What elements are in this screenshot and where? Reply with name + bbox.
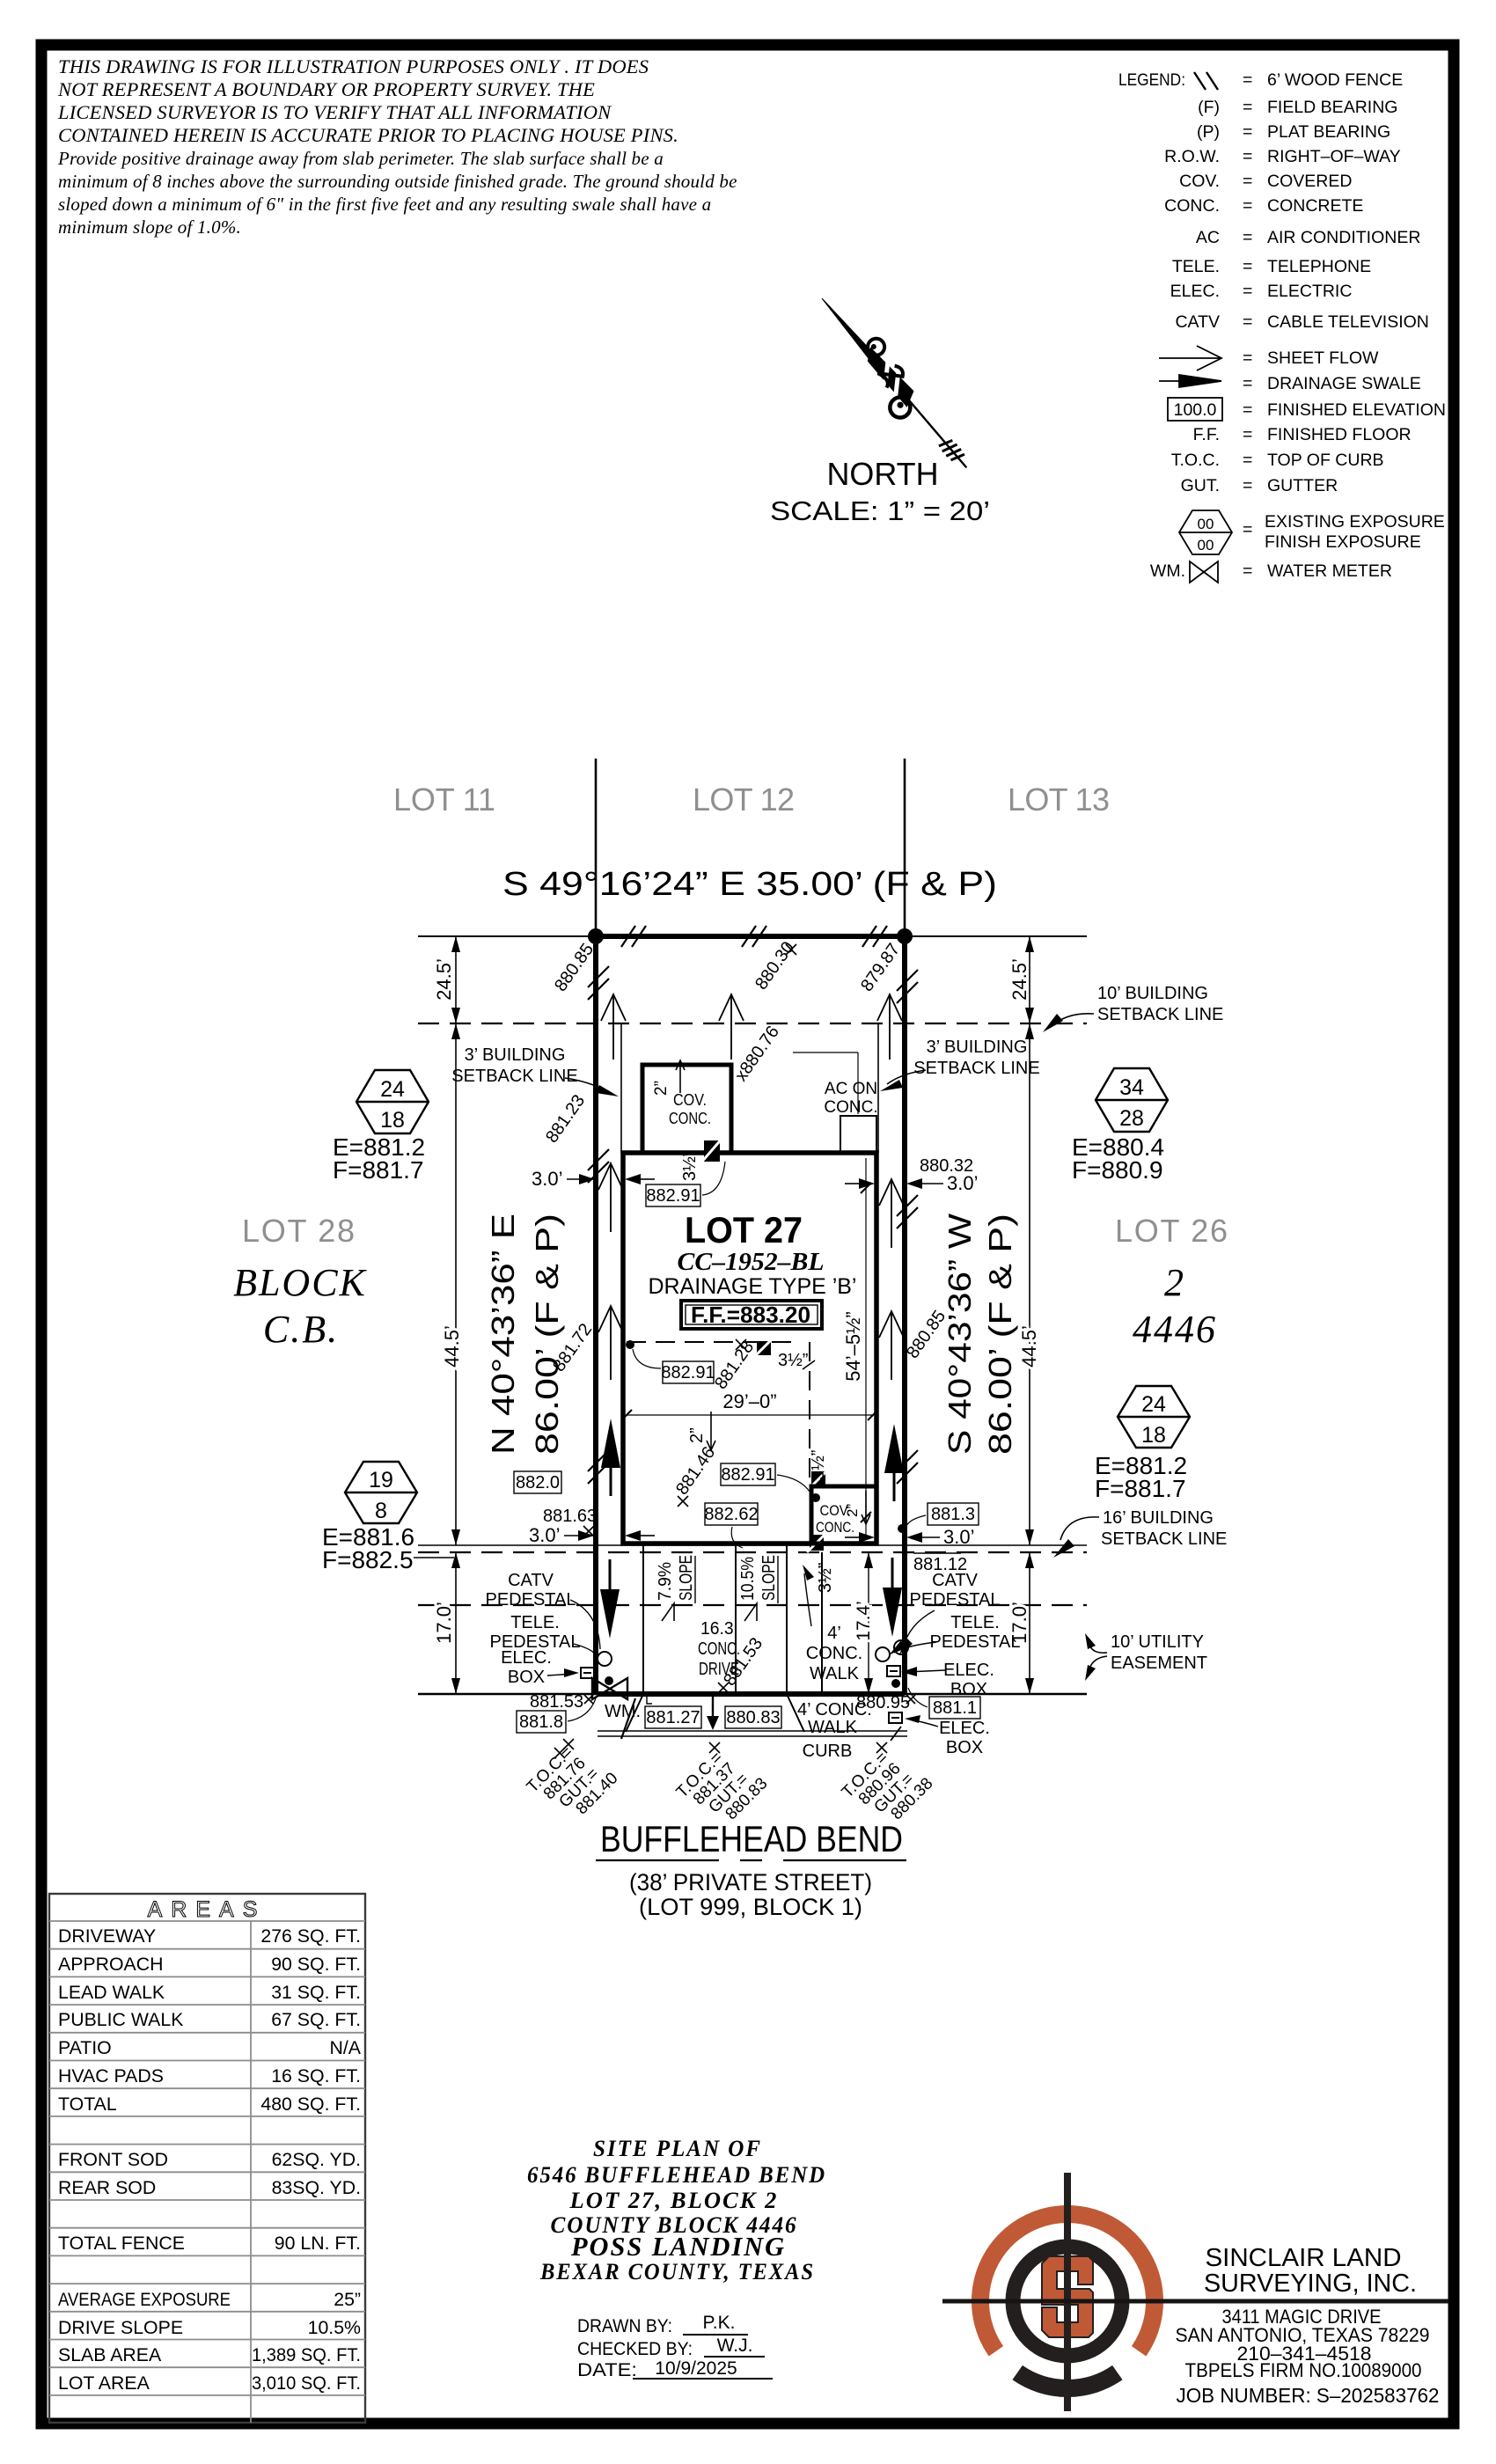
svg-text:CURB: CURB bbox=[803, 1742, 853, 1761]
svg-text:90 LN. FT.: 90 LN. FT. bbox=[275, 2233, 361, 2254]
svg-text:BUFFLEHEAD BEND: BUFFLEHEAD BEND bbox=[600, 1818, 903, 1859]
svg-text:29’–0”: 29’–0” bbox=[722, 1390, 776, 1412]
svg-text:18: 18 bbox=[1141, 1423, 1166, 1448]
svg-text:3½”: 3½” bbox=[680, 1151, 700, 1181]
svg-text:24.5’: 24.5’ bbox=[433, 958, 455, 1001]
svg-text:CHECKED BY:: CHECKED BY: bbox=[577, 2339, 693, 2359]
svg-text:N 40°43’36” E: N 40°43’36” E bbox=[485, 1214, 521, 1455]
svg-text:54’–5½”: 54’–5½” bbox=[842, 1311, 864, 1382]
svg-text:16’ BUILDING: 16’ BUILDING bbox=[1103, 1508, 1214, 1528]
svg-text:GUTTER: GUTTER bbox=[1267, 476, 1338, 495]
svg-text:882.0: 882.0 bbox=[516, 1473, 560, 1492]
svg-text:AC: AC bbox=[1196, 228, 1220, 247]
svg-text:880.83: 880.83 bbox=[726, 1708, 780, 1727]
svg-text:16 SQ. FT.: 16 SQ. FT. bbox=[271, 2065, 361, 2086]
svg-text:TOTAL: TOTAL bbox=[58, 2094, 117, 2115]
svg-text:FRONT SOD: FRONT SOD bbox=[58, 2149, 168, 2170]
svg-text:FINISHED ELEVATION: FINISHED ELEVATION bbox=[1267, 400, 1446, 420]
svg-text:AVERAGE EXPOSURE: AVERAGE EXPOSURE bbox=[58, 2289, 231, 2310]
svg-text:BOX: BOX bbox=[508, 1668, 545, 1687]
svg-text:=: = bbox=[1243, 312, 1252, 332]
svg-text:CONC.: CONC. bbox=[698, 1639, 740, 1659]
svg-text:WM.: WM. bbox=[1150, 561, 1185, 581]
svg-text:LOT 27: LOT 27 bbox=[685, 1209, 803, 1250]
svg-text:CATV: CATV bbox=[1175, 312, 1220, 332]
svg-text:EASEMENT: EASEMENT bbox=[1111, 1654, 1207, 1673]
svg-text:881.1: 881.1 bbox=[933, 1698, 977, 1718]
svg-text:86.00’ (F & P): 86.00’ (F & P) bbox=[529, 1214, 565, 1455]
svg-text:TBPELS FIRM NO.10089000: TBPELS FIRM NO.10089000 bbox=[1185, 2359, 1422, 2381]
svg-text:PEDESTAL: PEDESTAL bbox=[910, 1590, 1001, 1610]
svg-text:17.0’: 17.0’ bbox=[433, 1602, 455, 1644]
svg-text:Provide positive drainage away: Provide positive drainage away from slab… bbox=[57, 148, 664, 169]
svg-text:CONC.: CONC. bbox=[669, 1110, 711, 1127]
svg-text:TELE.: TELE. bbox=[510, 1613, 560, 1632]
svg-text:3.0’: 3.0’ bbox=[943, 1526, 974, 1548]
svg-text:10/9/2025: 10/9/2025 bbox=[655, 2358, 737, 2379]
svg-text:F=880.9: F=880.9 bbox=[1072, 1156, 1163, 1184]
svg-text:24: 24 bbox=[1141, 1392, 1166, 1417]
svg-text:1,389 SQ. FT.: 1,389 SQ. FT. bbox=[252, 2344, 361, 2365]
svg-text:CONC.: CONC. bbox=[1164, 196, 1220, 216]
svg-text:10.5%: 10.5% bbox=[738, 1557, 758, 1601]
svg-text:62SQ. YD.: 62SQ. YD. bbox=[272, 2149, 361, 2170]
svg-text:S 40°43’36” W: S 40°43’36” W bbox=[942, 1214, 978, 1455]
svg-text:SLOPE: SLOPE bbox=[677, 1555, 696, 1601]
svg-text:CATV: CATV bbox=[508, 1571, 554, 1590]
svg-text:PEDESTAL: PEDESTAL bbox=[486, 1590, 576, 1610]
svg-text:3’ BUILDING: 3’ BUILDING bbox=[465, 1045, 566, 1065]
svg-text:sloped down a minimum of 6" in: sloped down a minimum of 6" in the first… bbox=[58, 194, 711, 215]
svg-text:=: = bbox=[1243, 172, 1252, 191]
svg-text:882.91: 882.91 bbox=[646, 1186, 700, 1206]
svg-text:LICENSED SURVEYOR IS TO VERIFY: LICENSED SURVEYOR IS TO VERIFY THAT ALL … bbox=[57, 101, 612, 123]
svg-text:THIS DRAWING IS FOR ILLUSTRATI: THIS DRAWING IS FOR ILLUSTRATION PURPOSE… bbox=[58, 55, 649, 77]
svg-text:SURVEYING, INC.: SURVEYING, INC. bbox=[1204, 2270, 1417, 2298]
svg-text:882.91: 882.91 bbox=[721, 1465, 774, 1485]
svg-text:COV.: COV. bbox=[1179, 172, 1220, 191]
svg-text:SETBACK LINE: SETBACK LINE bbox=[913, 1059, 1039, 1078]
svg-text:=: = bbox=[1243, 476, 1252, 495]
svg-text:3½”: 3½” bbox=[778, 1351, 808, 1370]
svg-text:882.91: 882.91 bbox=[661, 1363, 715, 1382]
svg-text:RIGHT–OF–WAY: RIGHT–OF–WAY bbox=[1267, 147, 1401, 166]
svg-text:LEAD WALK: LEAD WALK bbox=[58, 1982, 165, 2003]
svg-text:00: 00 bbox=[1198, 516, 1214, 532]
svg-text:25”: 25” bbox=[334, 2289, 361, 2310]
svg-text:ELECTRIC: ELECTRIC bbox=[1267, 282, 1352, 301]
svg-text:3½”: 3½” bbox=[816, 1563, 835, 1593]
svg-text:83SQ. YD.: 83SQ. YD. bbox=[272, 2177, 361, 2198]
svg-text:2”: 2” bbox=[687, 1427, 707, 1443]
svg-text:POSS LANDING: POSS LANDING bbox=[570, 2231, 786, 2262]
svg-text:=: = bbox=[1243, 425, 1252, 444]
svg-text:10’ UTILITY: 10’ UTILITY bbox=[1111, 1632, 1204, 1652]
svg-text:00: 00 bbox=[1198, 537, 1214, 554]
svg-text:PEDESTAL: PEDESTAL bbox=[930, 1632, 1021, 1652]
svg-text:WALK: WALK bbox=[808, 1718, 858, 1737]
svg-text:DRAINAGE TYPE ’B’: DRAINAGE TYPE ’B’ bbox=[649, 1274, 857, 1299]
svg-text:T.O.C.: T.O.C. bbox=[1171, 451, 1220, 470]
svg-text:CONCRETE: CONCRETE bbox=[1267, 196, 1363, 216]
svg-text:=: = bbox=[1243, 451, 1252, 470]
svg-text:DATE:: DATE: bbox=[577, 2360, 637, 2380]
svg-text:TELE.: TELE. bbox=[1172, 257, 1220, 276]
svg-text:=: = bbox=[1243, 147, 1252, 166]
svg-text:COVERED: COVERED bbox=[1267, 172, 1352, 191]
svg-text:480 SQ. FT.: 480 SQ. FT. bbox=[260, 2094, 361, 2115]
svg-text:SINCLAIR LAND: SINCLAIR LAND bbox=[1206, 2244, 1402, 2272]
svg-text:CC–1952–BL: CC–1952–BL bbox=[678, 1248, 825, 1276]
svg-text:(F): (F) bbox=[1198, 98, 1220, 117]
svg-text:10’ BUILDING: 10’ BUILDING bbox=[1097, 984, 1208, 1003]
svg-text:ELEC.: ELEC. bbox=[501, 1648, 552, 1668]
svg-text:AREAS: AREAS bbox=[148, 1897, 267, 1922]
svg-text:JOB NUMBER: S–202583762: JOB NUMBER: S–202583762 bbox=[1177, 2384, 1440, 2407]
svg-text:S 49°16’24” E 35.00’ (F & P): S 49°16’24” E 35.00’ (F & P) bbox=[502, 866, 997, 903]
svg-text:CONC.: CONC. bbox=[806, 1644, 862, 1663]
svg-text:=: = bbox=[1243, 70, 1252, 90]
svg-text:DRAWN BY:: DRAWN BY: bbox=[577, 2316, 672, 2336]
svg-text:881.3: 881.3 bbox=[931, 1505, 975, 1524]
svg-text:881.53: 881.53 bbox=[530, 1692, 583, 1712]
svg-text:6546 BUFFLEHEAD BEND: 6546 BUFFLEHEAD BEND bbox=[527, 2162, 826, 2188]
svg-text:BEXAR COUNTY, TEXAS: BEXAR COUNTY, TEXAS bbox=[539, 2259, 815, 2284]
svg-text:LOT 28: LOT 28 bbox=[242, 1213, 356, 1249]
svg-text:100.0: 100.0 bbox=[1174, 400, 1217, 420]
svg-text:BLOCK: BLOCK bbox=[233, 1261, 367, 1304]
svg-text:SHEET FLOW: SHEET FLOW bbox=[1267, 348, 1379, 368]
svg-text:F=881.7: F=881.7 bbox=[333, 1156, 424, 1184]
svg-text:24: 24 bbox=[380, 1077, 405, 1102]
svg-text:881.63: 881.63 bbox=[543, 1507, 597, 1526]
svg-text:881.8: 881.8 bbox=[519, 1712, 563, 1732]
svg-text:GUT.: GUT. bbox=[1181, 476, 1220, 495]
svg-text:PATIO: PATIO bbox=[58, 2037, 112, 2058]
svg-text:=: = bbox=[1243, 348, 1252, 368]
svg-text:APPROACH: APPROACH bbox=[58, 1954, 164, 1975]
svg-text:FINISH EXPOSURE: FINISH EXPOSURE bbox=[1265, 532, 1421, 552]
svg-text:=: = bbox=[1243, 282, 1252, 301]
svg-text:WATER METER: WATER METER bbox=[1267, 561, 1392, 581]
svg-text:=: = bbox=[1243, 257, 1252, 276]
svg-text:276 SQ. FT.: 276 SQ. FT. bbox=[260, 1925, 361, 1947]
svg-text:16.3’: 16.3’ bbox=[700, 1619, 737, 1639]
svg-text:R.O.W.: R.O.W. bbox=[1164, 147, 1220, 166]
svg-text:CONTAINED HEREIN IS ACCURATE P: CONTAINED HEREIN IS ACCURATE PRIOR TO PL… bbox=[58, 124, 678, 146]
svg-text:CONC.: CONC. bbox=[824, 1098, 877, 1117]
svg-text:882.62: 882.62 bbox=[704, 1505, 758, 1524]
svg-text:18: 18 bbox=[380, 1108, 405, 1133]
svg-text:=: = bbox=[1243, 520, 1252, 539]
svg-text:86.00’ (F & P): 86.00’ (F & P) bbox=[982, 1214, 1018, 1455]
svg-text:minimum slope of 1.0%.: minimum slope of 1.0%. bbox=[58, 216, 241, 238]
svg-text:ELEC.: ELEC. bbox=[1170, 282, 1220, 301]
svg-text:SLAB AREA: SLAB AREA bbox=[58, 2344, 162, 2365]
svg-text:LOT 12: LOT 12 bbox=[693, 781, 796, 818]
svg-text:3.0’: 3.0’ bbox=[947, 1172, 978, 1194]
svg-text:DRAINAGE SWALE: DRAINAGE SWALE bbox=[1267, 374, 1421, 393]
svg-text:6’ WOOD FENCE: 6’ WOOD FENCE bbox=[1267, 70, 1403, 90]
svg-text:=: = bbox=[1243, 400, 1252, 420]
svg-text:=: = bbox=[1243, 98, 1252, 117]
svg-text:7.9%: 7.9% bbox=[656, 1562, 675, 1601]
svg-text:EXISTING EXPOSURE: EXISTING EXPOSURE bbox=[1265, 512, 1445, 532]
svg-text:W.J.: W.J. bbox=[717, 2336, 753, 2356]
svg-text:(38’ PRIVATE STREET): (38’ PRIVATE STREET) bbox=[629, 1869, 872, 1896]
svg-text:P.K.: P.K. bbox=[703, 2313, 736, 2333]
svg-text:ELEC.: ELEC. bbox=[943, 1661, 994, 1680]
svg-text:2”: 2” bbox=[844, 1504, 861, 1517]
svg-text:8: 8 bbox=[375, 1499, 387, 1523]
svg-text:FINISHED FLOOR: FINISHED FLOOR bbox=[1267, 425, 1412, 444]
svg-text:3.0’: 3.0’ bbox=[529, 1524, 560, 1546]
svg-text:FIELD BEARING: FIELD BEARING bbox=[1267, 98, 1397, 117]
svg-text:HVAC PADS: HVAC PADS bbox=[58, 2065, 164, 2086]
svg-text:881.27: 881.27 bbox=[646, 1708, 700, 1727]
svg-text:SETBACK LINE: SETBACK LINE bbox=[1097, 1005, 1223, 1024]
svg-text:SETBACK LINE: SETBACK LINE bbox=[451, 1067, 577, 1086]
svg-text:C.B.: C.B. bbox=[263, 1308, 339, 1351]
svg-text:COV.: COV. bbox=[673, 1091, 707, 1109]
svg-text:PUBLIC WALK: PUBLIC WALK bbox=[58, 2009, 183, 2030]
svg-text:10.5%: 10.5% bbox=[308, 2317, 361, 2338]
svg-text:67 SQ. FT.: 67 SQ. FT. bbox=[271, 2009, 361, 2030]
svg-text:=: = bbox=[1243, 196, 1252, 216]
svg-text:3.0’: 3.0’ bbox=[532, 1168, 562, 1190]
svg-text:DRIVE SLOPE: DRIVE SLOPE bbox=[58, 2317, 183, 2338]
svg-text:NORTH: NORTH bbox=[827, 456, 939, 492]
svg-text:AC ON: AC ON bbox=[825, 1080, 877, 1098]
svg-text:WM.: WM. bbox=[605, 1702, 641, 1721]
svg-text:LOT 26: LOT 26 bbox=[1115, 1213, 1229, 1249]
svg-text:LOT 11: LOT 11 bbox=[393, 781, 497, 818]
svg-text:SITE PLAN OF: SITE PLAN OF bbox=[593, 2136, 762, 2161]
svg-text:44.5’: 44.5’ bbox=[441, 1325, 463, 1368]
svg-text:19: 19 bbox=[369, 1468, 393, 1492]
svg-text:17.4’: 17.4’ bbox=[854, 1601, 874, 1641]
svg-text:=: = bbox=[1243, 122, 1252, 142]
svg-text:TOTAL FENCE: TOTAL FENCE bbox=[58, 2233, 185, 2254]
svg-text:2: 2 bbox=[1164, 1261, 1184, 1304]
svg-text:3½”: 3½” bbox=[809, 1450, 828, 1480]
svg-text:=: = bbox=[1243, 561, 1252, 581]
svg-text:LOT AREA: LOT AREA bbox=[58, 2372, 150, 2394]
svg-text:SLOPE: SLOPE bbox=[759, 1555, 779, 1601]
svg-text:3,010 SQ. FT.: 3,010 SQ. FT. bbox=[252, 2372, 361, 2394]
svg-text:LOT 13: LOT 13 bbox=[1008, 781, 1111, 818]
svg-text:TELE.: TELE. bbox=[950, 1613, 1000, 1632]
svg-text:34: 34 bbox=[1119, 1075, 1144, 1100]
svg-text:881.12: 881.12 bbox=[913, 1555, 967, 1574]
svg-text:CABLE TELEVISION: CABLE TELEVISION bbox=[1267, 312, 1429, 332]
svg-text:=: = bbox=[1243, 228, 1252, 247]
svg-text:F.F.=883.20: F.F.=883.20 bbox=[691, 1302, 810, 1328]
svg-text:REAR SOD: REAR SOD bbox=[58, 2177, 156, 2198]
svg-text:=: = bbox=[1243, 374, 1252, 393]
svg-text:F=881.7: F=881.7 bbox=[1095, 1475, 1186, 1502]
svg-text:F=882.5: F=882.5 bbox=[322, 1546, 414, 1573]
svg-text:4’: 4’ bbox=[827, 1624, 841, 1643]
svg-text:44.5’: 44.5’ bbox=[1018, 1325, 1040, 1368]
svg-text:TELEPHONE: TELEPHONE bbox=[1267, 257, 1371, 276]
svg-text:4446: 4446 bbox=[1133, 1308, 1217, 1351]
svg-text:880.95: 880.95 bbox=[856, 1693, 910, 1712]
svg-text:LOT 27, BLOCK 2: LOT 27, BLOCK 2 bbox=[568, 2188, 778, 2213]
svg-text:90 SQ. FT.: 90 SQ. FT. bbox=[271, 1954, 361, 1975]
svg-text:CONC.: CONC. bbox=[816, 1520, 854, 1536]
svg-text:LEGEND:: LEGEND: bbox=[1118, 70, 1185, 90]
svg-text:WALK: WALK bbox=[810, 1664, 860, 1683]
svg-text:AIR CONDITIONER: AIR CONDITIONER bbox=[1267, 228, 1420, 247]
svg-text:SCALE: 1” = 20’: SCALE: 1” = 20’ bbox=[770, 495, 990, 526]
svg-text:F.F.: F.F. bbox=[1193, 425, 1220, 444]
svg-text:28: 28 bbox=[1119, 1106, 1144, 1131]
svg-text:SETBACK LINE: SETBACK LINE bbox=[1101, 1529, 1227, 1549]
svg-text:3’ BUILDING: 3’ BUILDING bbox=[927, 1038, 1028, 1057]
svg-text:N/A: N/A bbox=[329, 2037, 361, 2058]
svg-text:DRIVEWAY: DRIVEWAY bbox=[58, 1925, 156, 1947]
svg-text:ELEC.: ELEC. bbox=[939, 1719, 990, 1738]
svg-text:PLAT BEARING: PLAT BEARING bbox=[1267, 122, 1390, 142]
svg-text:(P): (P) bbox=[1197, 122, 1220, 142]
svg-text:NOT REPRESENT A BOUNDARY OR PR: NOT REPRESENT A BOUNDARY OR PROPERTY SUR… bbox=[57, 78, 595, 100]
svg-text:TOP OF CURB: TOP OF CURB bbox=[1267, 451, 1384, 470]
svg-text:2”: 2” bbox=[652, 1081, 671, 1096]
svg-text:minimum of 8 inches above the: minimum of 8 inches above the surroundin… bbox=[58, 171, 737, 192]
svg-text:BOX: BOX bbox=[946, 1738, 983, 1757]
svg-text:31 SQ. FT.: 31 SQ. FT. bbox=[271, 1982, 361, 2003]
svg-text:24.5’: 24.5’ bbox=[1008, 958, 1030, 1001]
svg-text:(LOT 999, BLOCK 1): (LOT 999, BLOCK 1) bbox=[639, 1894, 862, 1920]
